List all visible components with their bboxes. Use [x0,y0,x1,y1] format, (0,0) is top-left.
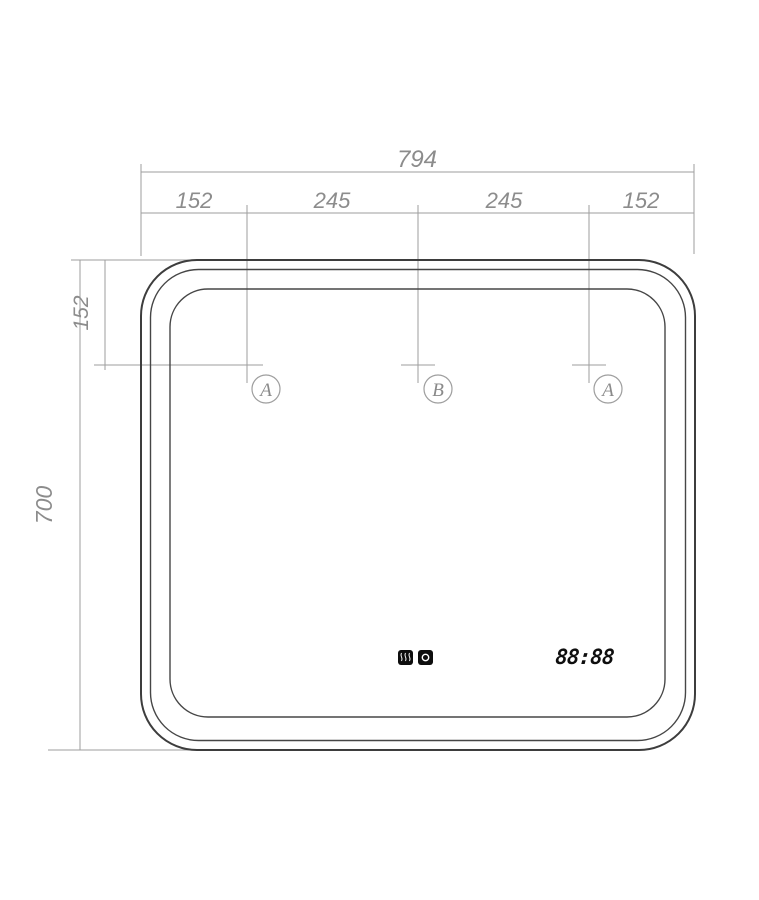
demister-touch-icon [398,650,413,665]
dim-sensor-offset-label: 152 [70,295,93,330]
zone-marker-b-label: B [432,380,444,401]
clock-display: 88:88 [555,644,615,669]
zone-marker-a1-label: A [258,380,272,401]
dim-segment-1-label: 152 [176,188,213,213]
dim-segment-3-label: 245 [485,188,523,213]
touch-buttons [398,650,433,665]
zone-marker-a2-label: A [600,380,614,401]
mirror-technical-drawing: 794 152 245 245 152 700 152 A B A [0,0,759,900]
dim-segment-4-label: 152 [623,188,660,213]
light-power-touch-icon [418,650,433,665]
dim-overall-width-label: 794 [397,146,437,173]
dim-overall-height-label: 700 [31,486,57,525]
dim-segment-2-label: 245 [313,188,351,213]
drawing-canvas: 794 152 245 245 152 700 152 A B A [0,0,759,900]
